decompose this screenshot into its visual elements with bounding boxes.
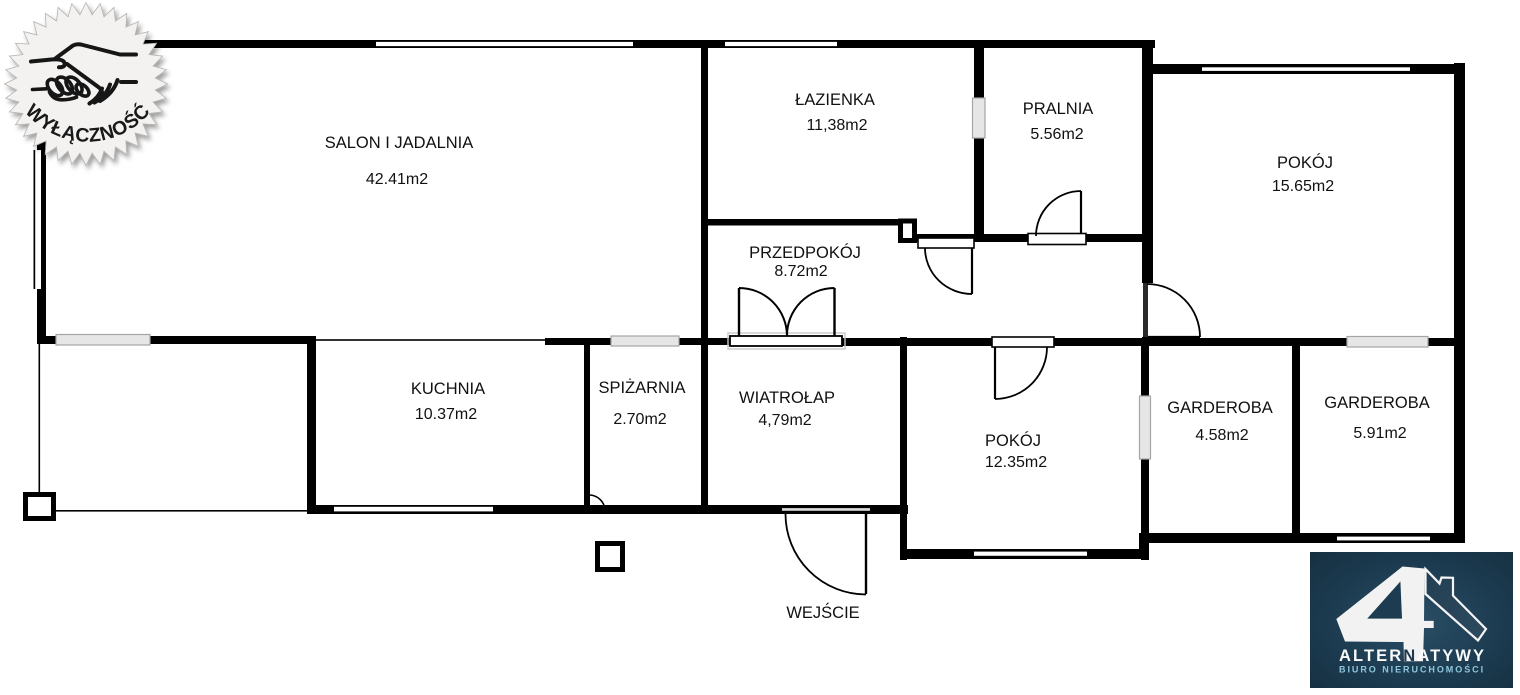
svg-text:4,79m2: 4,79m2 [758,412,811,429]
svg-text:5.91m2: 5.91m2 [1353,425,1406,442]
svg-text:WEJŚCIE: WEJŚCIE [786,603,859,622]
svg-text:GARDEROBA: GARDEROBA [1324,394,1429,412]
svg-text:POKÓJ: POKÓJ [985,431,1041,450]
svg-text:POKÓJ: POKÓJ [1277,153,1333,172]
svg-text:KUCHNIA: KUCHNIA [411,380,485,398]
svg-text:4.58m2: 4.58m2 [1195,427,1248,444]
svg-text:15.65m2: 15.65m2 [1272,178,1334,195]
svg-text:2.70m2: 2.70m2 [613,411,666,428]
svg-text:10.37m2: 10.37m2 [415,406,477,423]
svg-text:SALON I JADALNIA: SALON I JADALNIA [325,134,474,152]
svg-text:42.41m2: 42.41m2 [366,171,428,188]
svg-text:WIATROŁAP: WIATROŁAP [739,389,835,407]
svg-text:8.72m2: 8.72m2 [774,263,827,280]
svg-text:BIURO NIERUCHOMOŚCI: BIURO NIERUCHOMOŚCI [1339,664,1485,675]
svg-text:PRALNIA: PRALNIA [1023,100,1094,118]
svg-text:12.35m2: 12.35m2 [985,454,1047,471]
svg-text:GARDEROBA: GARDEROBA [1167,399,1272,417]
svg-text:SPIŻARNIA: SPIŻARNIA [598,378,685,397]
svg-text:ALTERNATYWY: ALTERNATYWY [1339,647,1486,665]
svg-text:11,38m2: 11,38m2 [806,117,867,134]
svg-text:5.56m2: 5.56m2 [1030,126,1083,143]
svg-text:ŁAZIENKA: ŁAZIENKA [795,91,875,109]
svg-text:PRZEDPOKÓJ: PRZEDPOKÓJ [749,243,861,262]
